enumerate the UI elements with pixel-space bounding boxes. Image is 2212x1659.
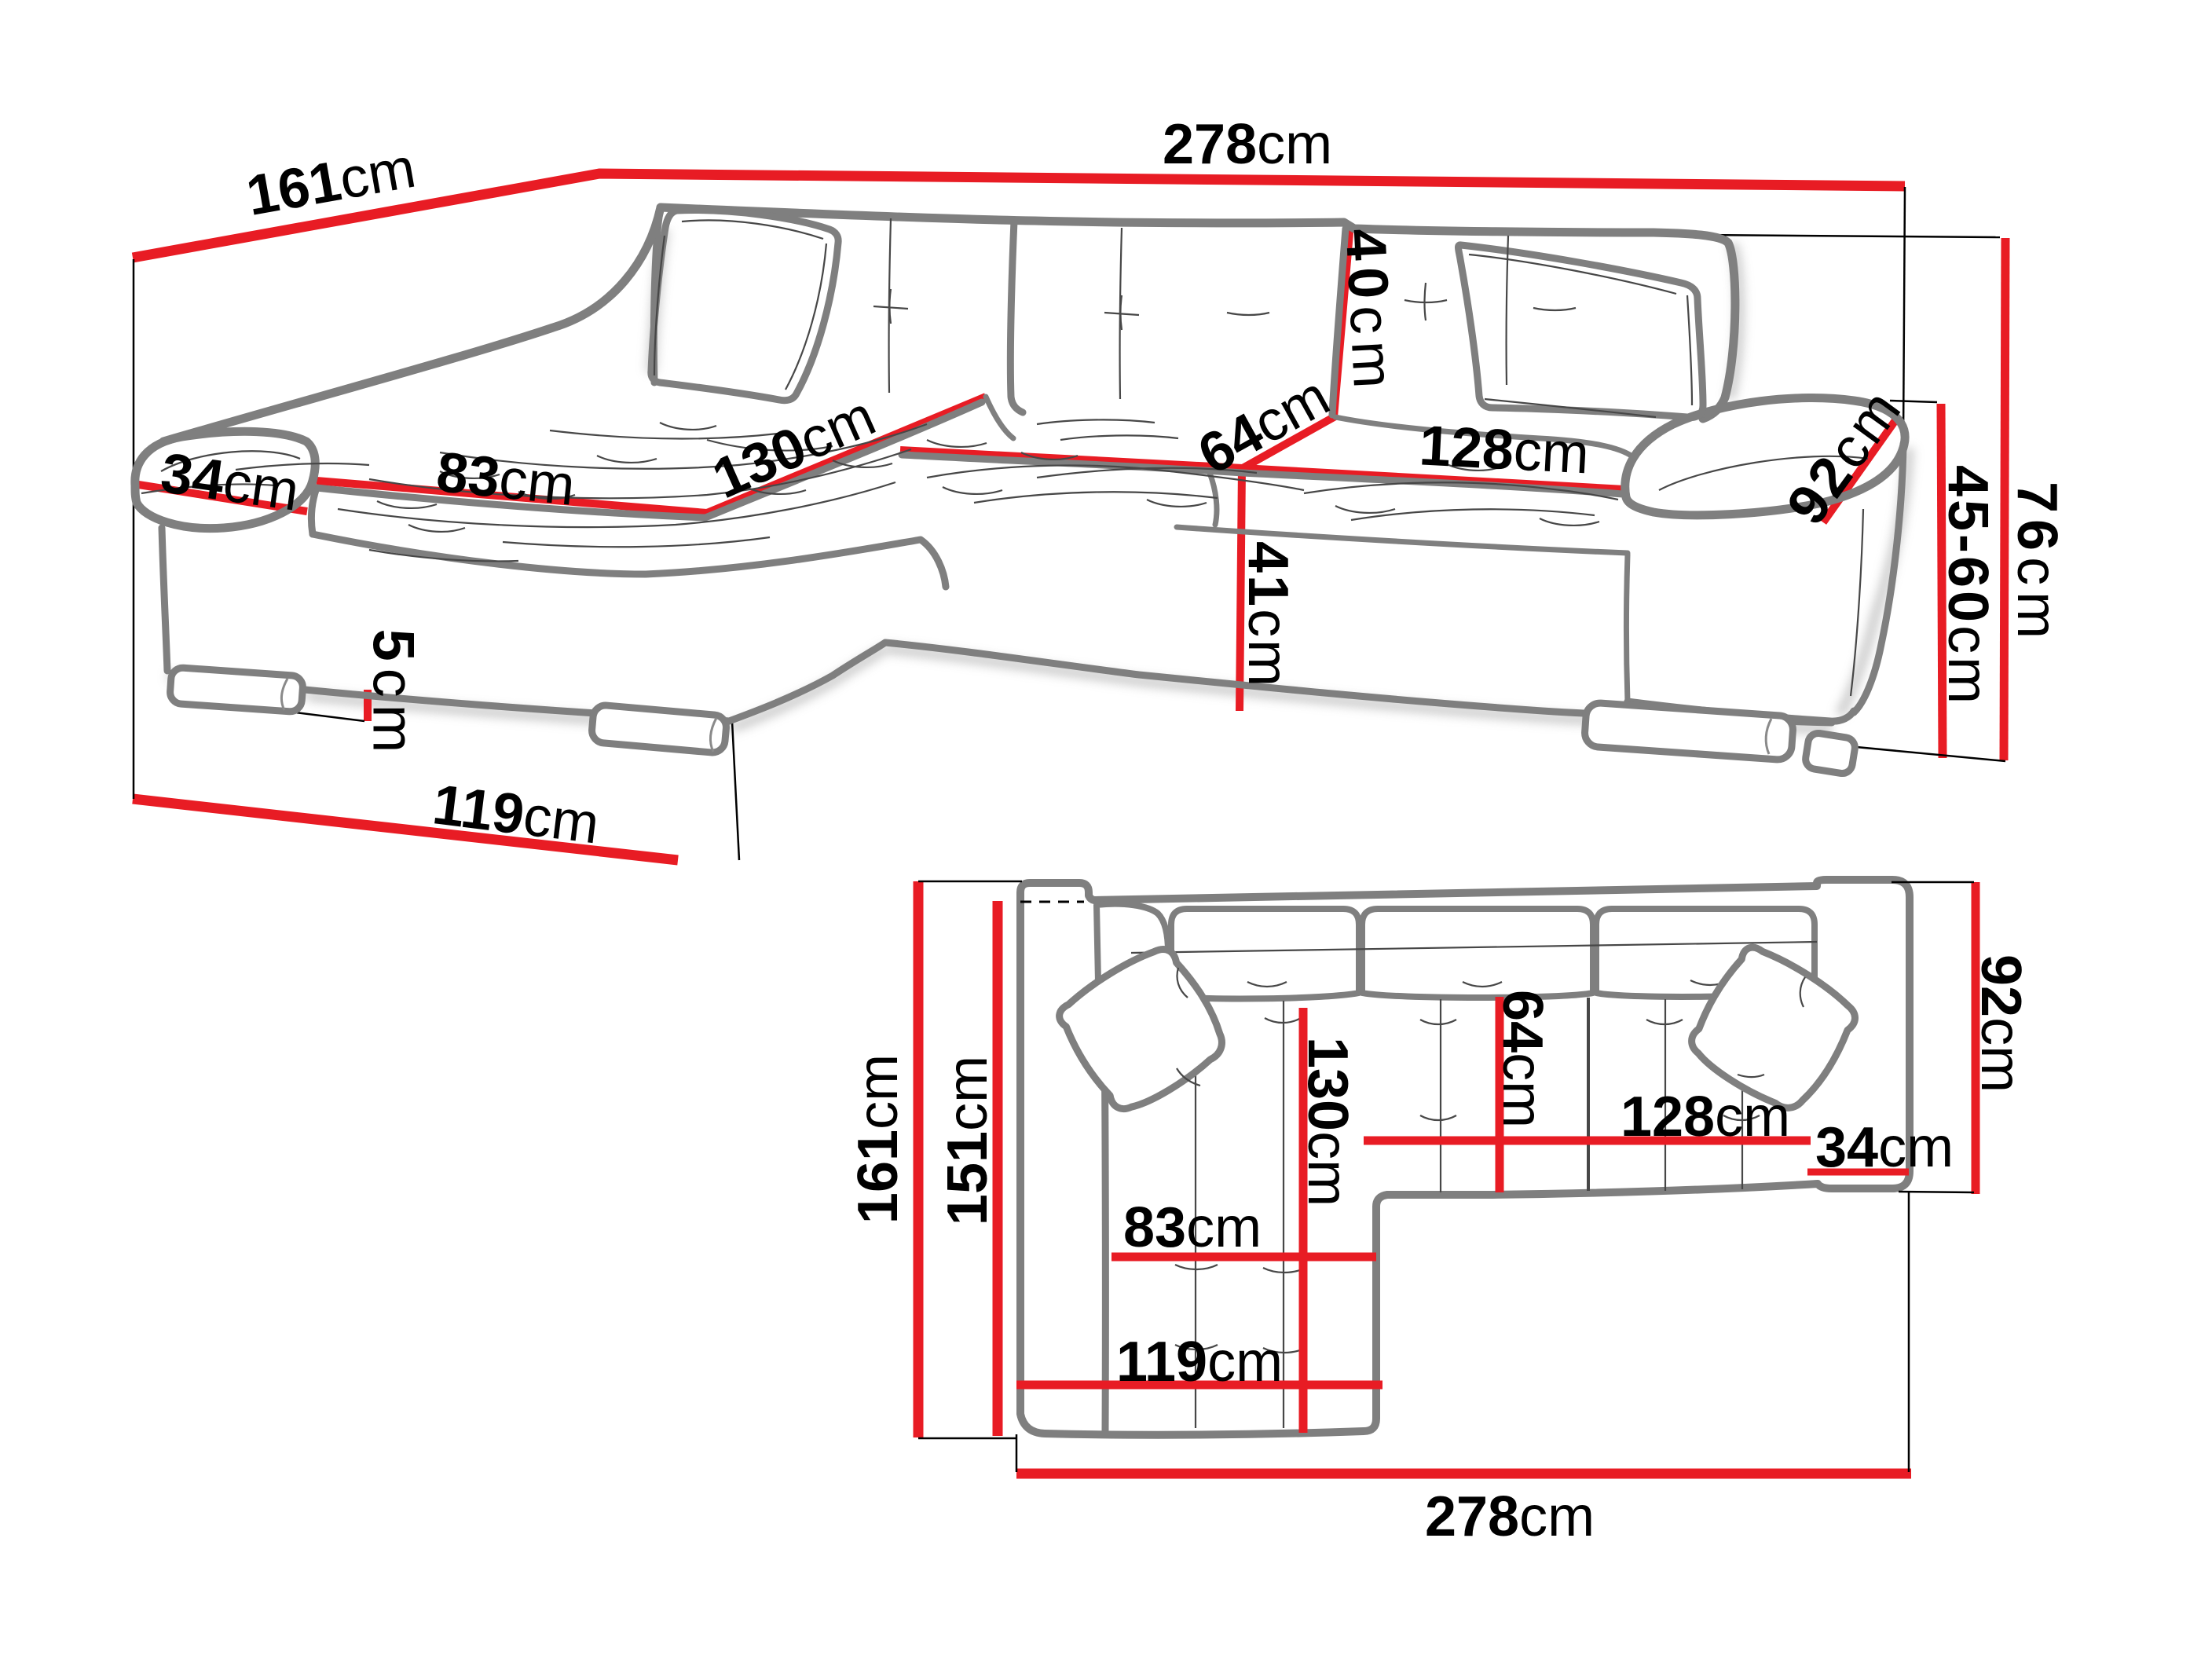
svg-text:34cm: 34cm (1815, 1116, 1954, 1179)
svg-text:64cm: 64cm (1491, 990, 1554, 1128)
svg-text:76cm: 76cm (2005, 482, 2068, 645)
svg-text:119cm: 119cm (1116, 1331, 1283, 1393)
svg-text:161cm: 161cm (847, 1054, 910, 1224)
svg-text:278cm: 278cm (1425, 1485, 1595, 1548)
svg-text:151cm: 151cm (936, 1056, 999, 1225)
svg-text:40cm: 40cm (1334, 227, 1405, 397)
svg-text:41cm: 41cm (1236, 541, 1299, 689)
svg-text:278cm: 278cm (1163, 113, 1332, 176)
svg-text:83cm: 83cm (1123, 1196, 1262, 1259)
svg-text:5cm: 5cm (361, 629, 426, 760)
svg-text:45-60cm: 45-60cm (1936, 465, 1999, 707)
svg-text:128cm: 128cm (1621, 1086, 1790, 1148)
svg-text:128cm: 128cm (1418, 414, 1591, 485)
svg-text:92cm: 92cm (1969, 954, 2032, 1093)
svg-text:130cm: 130cm (1296, 1037, 1359, 1207)
